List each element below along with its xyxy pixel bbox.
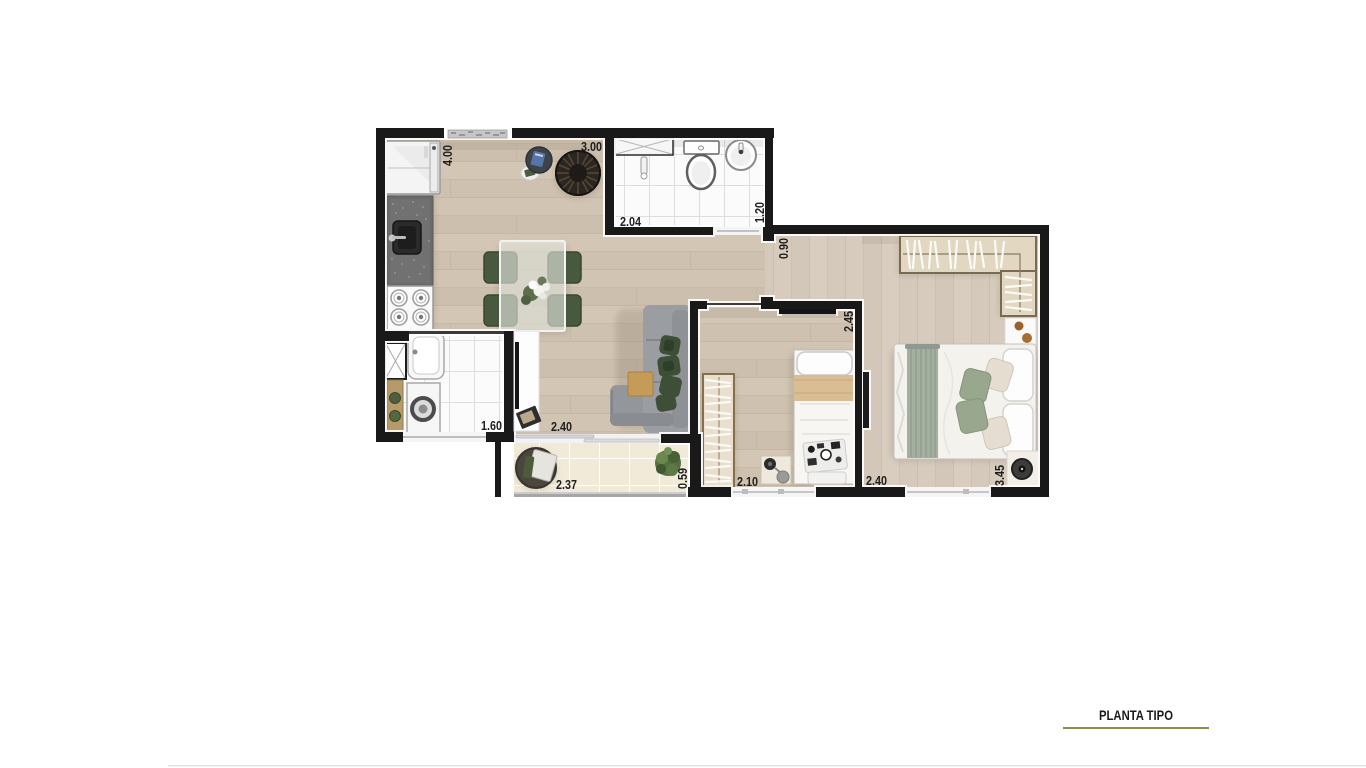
svg-text:PLANTA TIPO: PLANTA TIPO <box>1099 707 1173 723</box>
svg-text:1.60: 1.60 <box>481 418 502 433</box>
svg-text:3.00: 3.00 <box>581 139 602 154</box>
svg-text:0.59: 0.59 <box>675 468 690 489</box>
svg-text:2.04: 2.04 <box>620 214 642 229</box>
svg-text:2.45: 2.45 <box>841 311 856 332</box>
svg-text:2.40: 2.40 <box>866 473 887 488</box>
svg-text:2.40: 2.40 <box>551 419 572 434</box>
svg-text:2.10: 2.10 <box>737 474 758 489</box>
svg-text:3.45: 3.45 <box>992 465 1007 486</box>
svg-text:4.00: 4.00 <box>440 145 455 166</box>
svg-text:0.90: 0.90 <box>776 238 791 259</box>
svg-text:1.20: 1.20 <box>752 202 767 223</box>
svg-text:2.37: 2.37 <box>556 477 577 492</box>
